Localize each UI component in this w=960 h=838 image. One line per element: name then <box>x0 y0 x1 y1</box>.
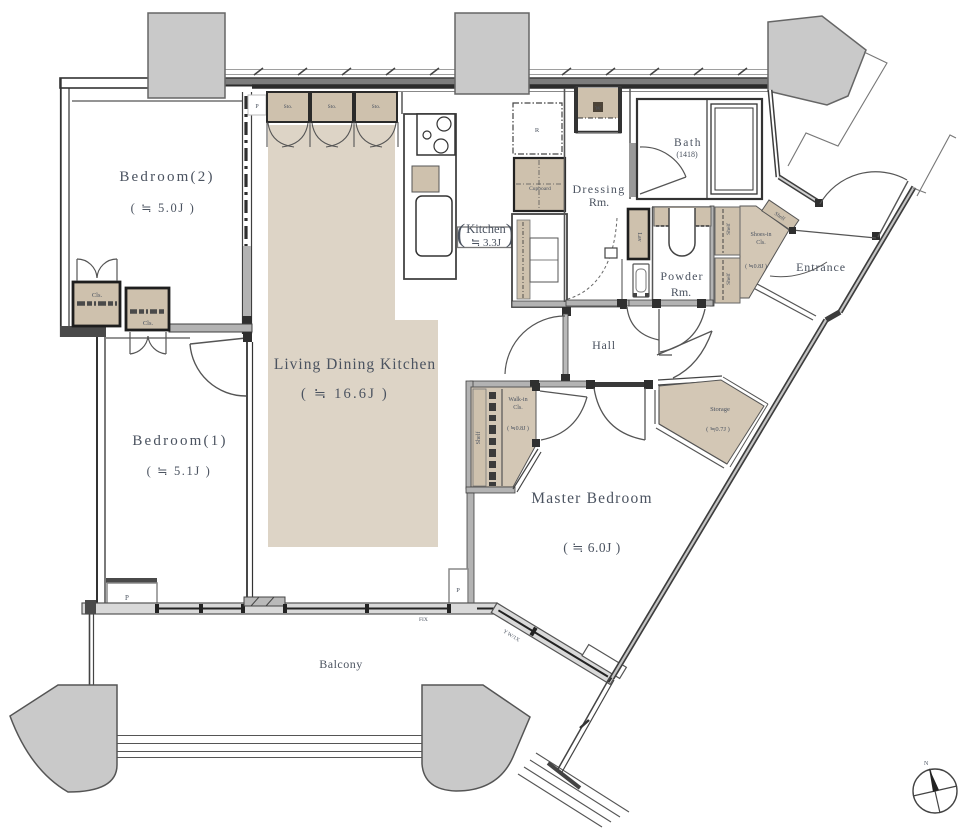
svg-text:Cls.: Cls. <box>92 292 103 299</box>
svg-text:P: P <box>456 587 460 594</box>
svg-text:Shelf: Shelf <box>725 223 732 235</box>
svg-text:Kitchen: Kitchen <box>466 222 506 236</box>
svg-text:Living Dining Kitchen: Living Dining Kitchen <box>274 356 436 373</box>
svg-text:( ≒0.8J ): ( ≒0.8J ) <box>745 263 767 270</box>
svg-text:W: W <box>595 106 601 112</box>
svg-text:Rm.: Rm. <box>671 285 691 299</box>
svg-text:Dressing: Dressing <box>572 182 625 196</box>
svg-text:N: N <box>924 761 929 767</box>
svg-text:( ≒ 5.1J ): ( ≒ 5.1J ) <box>147 464 212 478</box>
svg-text:Rm.: Rm. <box>589 195 609 209</box>
svg-text:Master Bedroom: Master Bedroom <box>531 490 652 507</box>
svg-text:( ≒ 6.0J ): ( ≒ 6.0J ) <box>563 540 621 555</box>
svg-text:Shelf: Shelf <box>725 273 732 285</box>
svg-text:R: R <box>535 127 540 134</box>
svg-text:Shoes-in: Shoes-in <box>751 232 772 238</box>
svg-text:Bedroom(1): Bedroom(1) <box>132 433 227 449</box>
svg-text:Shelf: Shelf <box>475 432 482 445</box>
svg-text:Sto.: Sto. <box>284 104 293 110</box>
svg-text:Bath: Bath <box>674 137 702 149</box>
svg-text:≒ 3.3J: ≒ 3.3J <box>471 237 502 249</box>
svg-text:Cupboard: Cupboard <box>529 186 551 192</box>
svg-text:Sto.: Sto. <box>372 104 381 110</box>
svg-text:Hall: Hall <box>592 338 616 352</box>
svg-text:Entrance: Entrance <box>796 260 846 274</box>
svg-text:Sto.: Sto. <box>328 104 337 110</box>
svg-text:( ≒0.7J ): ( ≒0.7J ) <box>706 426 730 433</box>
svg-text:Balcony: Balcony <box>319 657 363 671</box>
svg-text:Cls.: Cls. <box>756 240 766 246</box>
svg-text:Storage: Storage <box>710 406 730 413</box>
svg-text:( ≒ 5.0J ): ( ≒ 5.0J ) <box>131 201 196 215</box>
svg-text:Cls.: Cls. <box>513 405 523 411</box>
svg-text:Cls.: Cls. <box>143 320 154 327</box>
svg-text:Powder: Powder <box>660 269 703 283</box>
svg-text:Bedroom(2): Bedroom(2) <box>119 169 214 185</box>
svg-text:FIX: FIX <box>419 617 428 623</box>
svg-text:P: P <box>125 594 129 602</box>
svg-text:(: ( <box>457 219 466 248</box>
svg-text:(1418): (1418) <box>676 150 698 159</box>
svg-text:Lav: Lav <box>636 232 642 241</box>
svg-text:Walk-in: Walk-in <box>508 397 527 403</box>
svg-text:( ≒0.8J ): ( ≒0.8J ) <box>507 425 529 432</box>
svg-text:( ≒ 16.6J ): ( ≒ 16.6J ) <box>301 386 389 402</box>
